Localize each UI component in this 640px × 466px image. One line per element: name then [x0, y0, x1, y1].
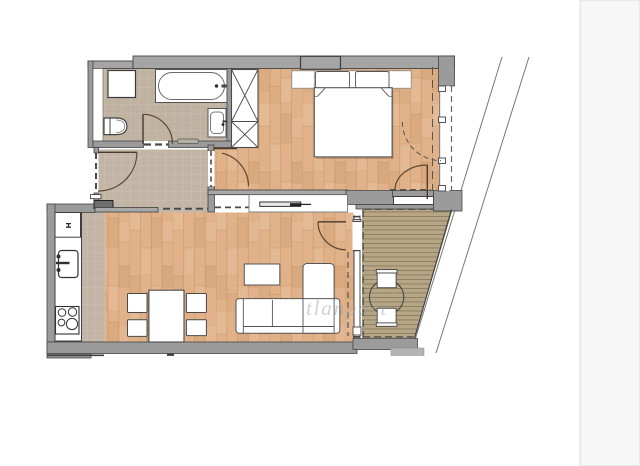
svg-text:tlanpart: tlanpart — [306, 296, 388, 320]
